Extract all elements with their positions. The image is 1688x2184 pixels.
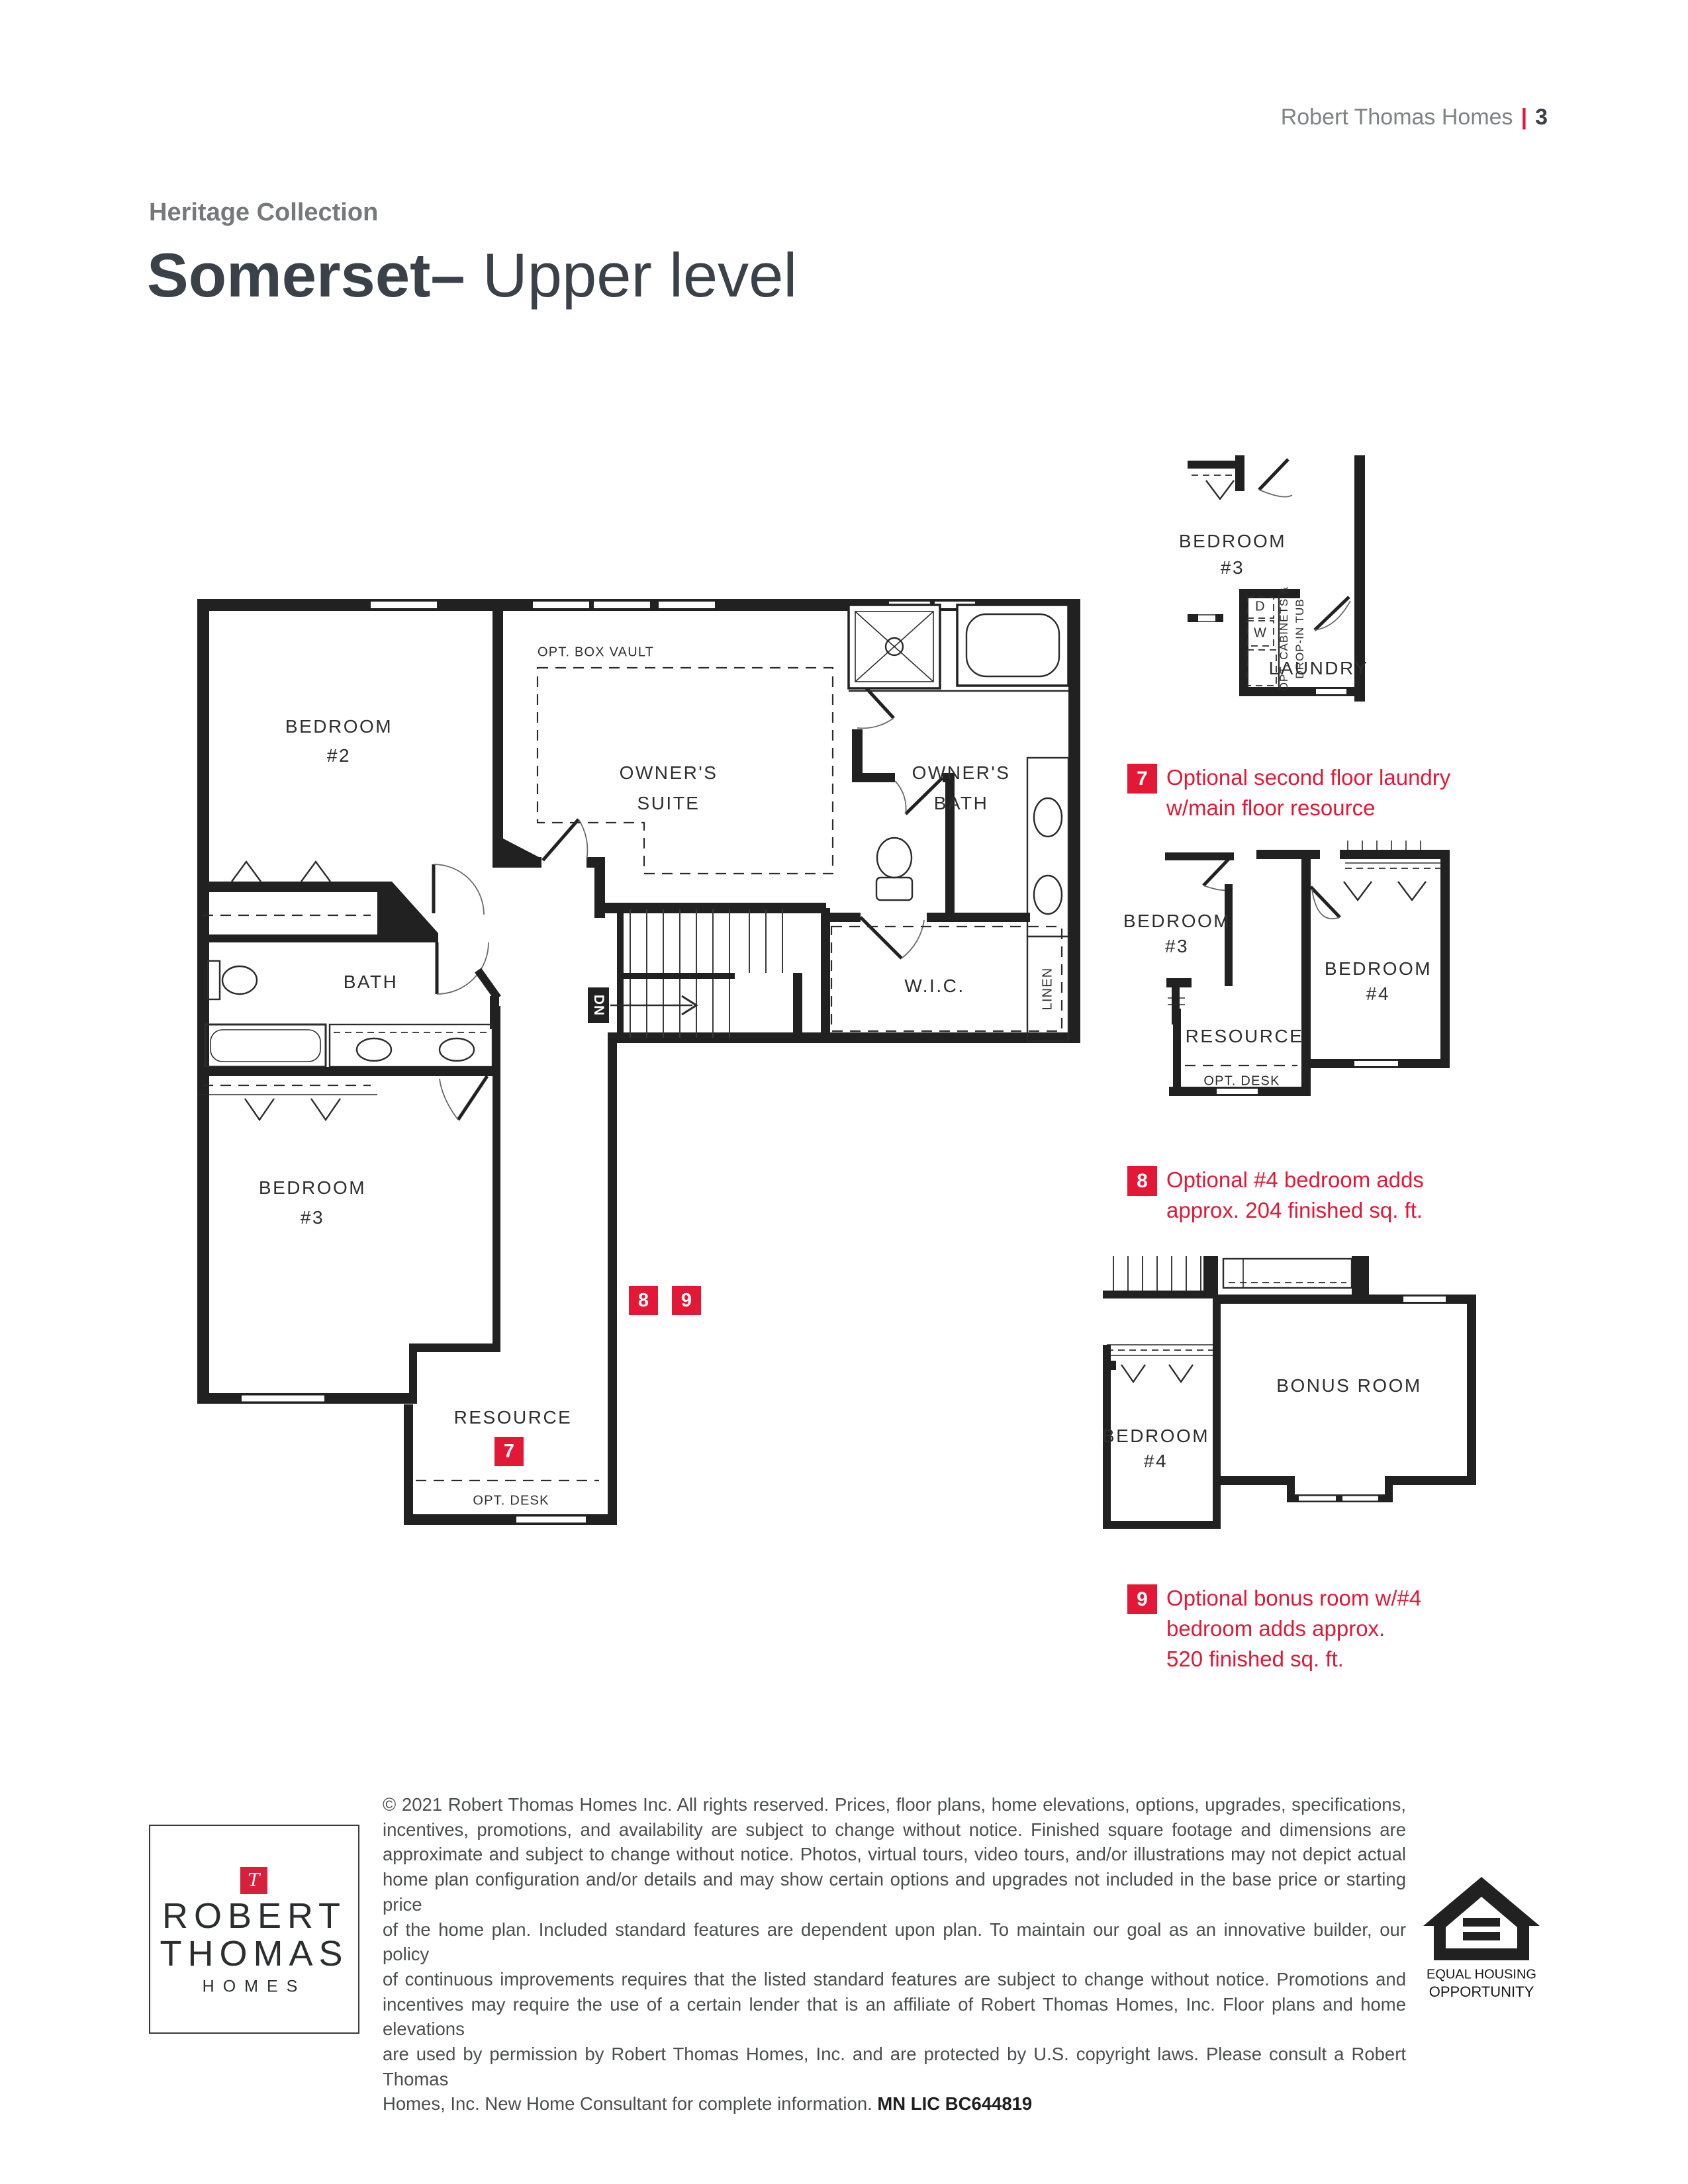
callout-7-badge: 7 <box>1127 764 1157 794</box>
license-number: MN LIC BC644819 <box>877 2093 1032 2114</box>
callout-9-line1: Optional bonus room w/#4 <box>1166 1583 1421 1614</box>
disclaimer-last-text: Homes, Inc. New Home Consultant for comp… <box>383 2093 877 2114</box>
callout-7: 7 Optional second floor laundry w/main f… <box>1127 762 1450 823</box>
legal-disclaimer: © 2021 Robert Thomas Homes Inc. All righ… <box>383 1792 1406 2116</box>
inset-bed4-opt-desk: OPT. DESK <box>1203 1074 1280 1089</box>
plan-marker-8: 8 <box>629 1286 658 1315</box>
callout-8-text: Optional #4 bedroom adds approx. 204 fin… <box>1166 1165 1424 1226</box>
disclaimer-line: © 2021 Robert Thomas Homes Inc. All righ… <box>383 1792 1406 1817</box>
callout-9: 9 Optional bonus room w/#4 bedroom adds … <box>1127 1583 1421 1674</box>
inset-bed4-resource: RESOURCE <box>1186 1026 1304 1047</box>
callout-7-line1: Optional second floor laundry <box>1166 762 1450 793</box>
callout-8-line1: Optional #4 bedroom adds <box>1166 1165 1424 1195</box>
dryer-label: D <box>1255 600 1266 615</box>
room-label-bedroom3-num: #3 <box>301 1207 324 1228</box>
disclaimer-line: incentives may require the use of a cert… <box>383 1992 1406 2042</box>
logo-thomas: THOMAS <box>160 1933 348 1974</box>
callout-7-text: Optional second floor laundry w/main flo… <box>1166 762 1450 823</box>
title-dash: – <box>430 240 465 310</box>
inset-laundry-bedroom3: BEDROOM <box>1179 531 1286 552</box>
stairs-dn-label: DN <box>590 995 606 1016</box>
page-header: Robert Thomas Homes|3 <box>1281 105 1548 130</box>
room-label-owners-bath2: BATH <box>934 793 989 814</box>
inset-bonus-bedroom4: BEDROOM <box>1102 1426 1209 1447</box>
brochure-page: Robert Thomas Homes|3 Heritage Collectio… <box>0 0 1688 2184</box>
inset-bed4-bedroom4: BEDROOM <box>1325 958 1432 979</box>
logo-homes: HOMES <box>203 1978 306 1997</box>
header-divider: | <box>1521 105 1528 130</box>
callout-9-text: Optional bonus room w/#4 bedroom adds ap… <box>1166 1583 1421 1674</box>
equal-housing-icon <box>1423 1877 1540 1960</box>
inset-bed4-bedroom4-num: #4 <box>1366 983 1390 1005</box>
callout-7-line2: w/main floor resource <box>1166 793 1450 823</box>
disclaimer-last-line: Homes, Inc. New Home Consultant for comp… <box>383 2091 1406 2116</box>
inset-bed4-bedroom3-num: #3 <box>1165 936 1189 957</box>
eho-line1: EQUAL HOUSING <box>1427 1968 1536 1983</box>
callout-8-badge: 8 <box>1127 1166 1157 1196</box>
level-name: Upper level <box>465 240 798 310</box>
washer-label: W <box>1254 626 1267 641</box>
callout-9-badge: 9 <box>1127 1584 1157 1614</box>
disclaimer-line: home plan configuration and/or details a… <box>383 1867 1406 1917</box>
main-plan-walls <box>197 599 1080 1525</box>
eho-line2: OPPORTUNITY <box>1429 1983 1534 2001</box>
logo-monogram: T <box>240 1867 267 1894</box>
inset-laundry-bedroom3-num: #3 <box>1221 557 1244 578</box>
plan-marker-7: 7 <box>494 1437 524 1466</box>
room-label-owners-bath: OWNER'S <box>912 762 1011 784</box>
callout-9-line2: bedroom adds approx. <box>1166 1614 1421 1644</box>
plan-marker-9: 9 <box>672 1286 701 1315</box>
room-label-resource: RESOURCE <box>454 1407 573 1428</box>
room-label-bedroom2-num: #2 <box>327 745 351 766</box>
disclaimer-line: of the home plan. Included standard feat… <box>383 1917 1406 1967</box>
laundry-label: LAUNDRY <box>1269 658 1369 679</box>
collection-label: Heritage Collection <box>149 199 378 227</box>
bonus-room-label: BONUS ROOM <box>1276 1375 1421 1396</box>
callout-8: 8 Optional #4 bedroom adds approx. 204 f… <box>1127 1165 1424 1226</box>
room-label-owners-suite: OWNER'S <box>620 762 718 784</box>
room-label-bedroom3: BEDROOM <box>259 1177 366 1199</box>
page-number: 3 <box>1535 105 1548 130</box>
room-label-owners-suite2: SUITE <box>637 793 700 814</box>
model-name: Somerset <box>147 240 430 310</box>
logo-robert: ROBERT <box>162 1895 346 1936</box>
opt-box-vault-label: OPT. BOX VAULT <box>538 645 654 660</box>
callout-9-line3: 520 finished sq. ft. <box>1166 1644 1421 1674</box>
opt-desk-label: OPT. DESK <box>473 1494 549 1509</box>
inset-bed4-bedroom3: BEDROOM <box>1123 911 1231 932</box>
room-label-wic: W.I.C. <box>904 976 964 997</box>
room-label-bath: BATH <box>344 972 399 993</box>
callout-8-line2: approx. 204 finished sq. ft. <box>1166 1195 1424 1226</box>
linen-label: LINEN <box>1041 968 1056 1011</box>
disclaimer-line: approximate and subject to change withou… <box>383 1842 1406 1867</box>
page-title: Somerset– Upper level <box>147 240 797 311</box>
inset-bonus-bedroom4-num: #4 <box>1144 1451 1168 1472</box>
room-label-bedroom2: BEDROOM <box>285 716 393 737</box>
disclaimer-line: incentives, promotions, and availability… <box>383 1817 1406 1843</box>
disclaimer-line: of continuous improvements requires that… <box>383 1967 1406 1992</box>
disclaimer-line: are used by permission by Robert Thomas … <box>383 2042 1406 2091</box>
brand-name: Robert Thomas Homes <box>1281 105 1513 130</box>
